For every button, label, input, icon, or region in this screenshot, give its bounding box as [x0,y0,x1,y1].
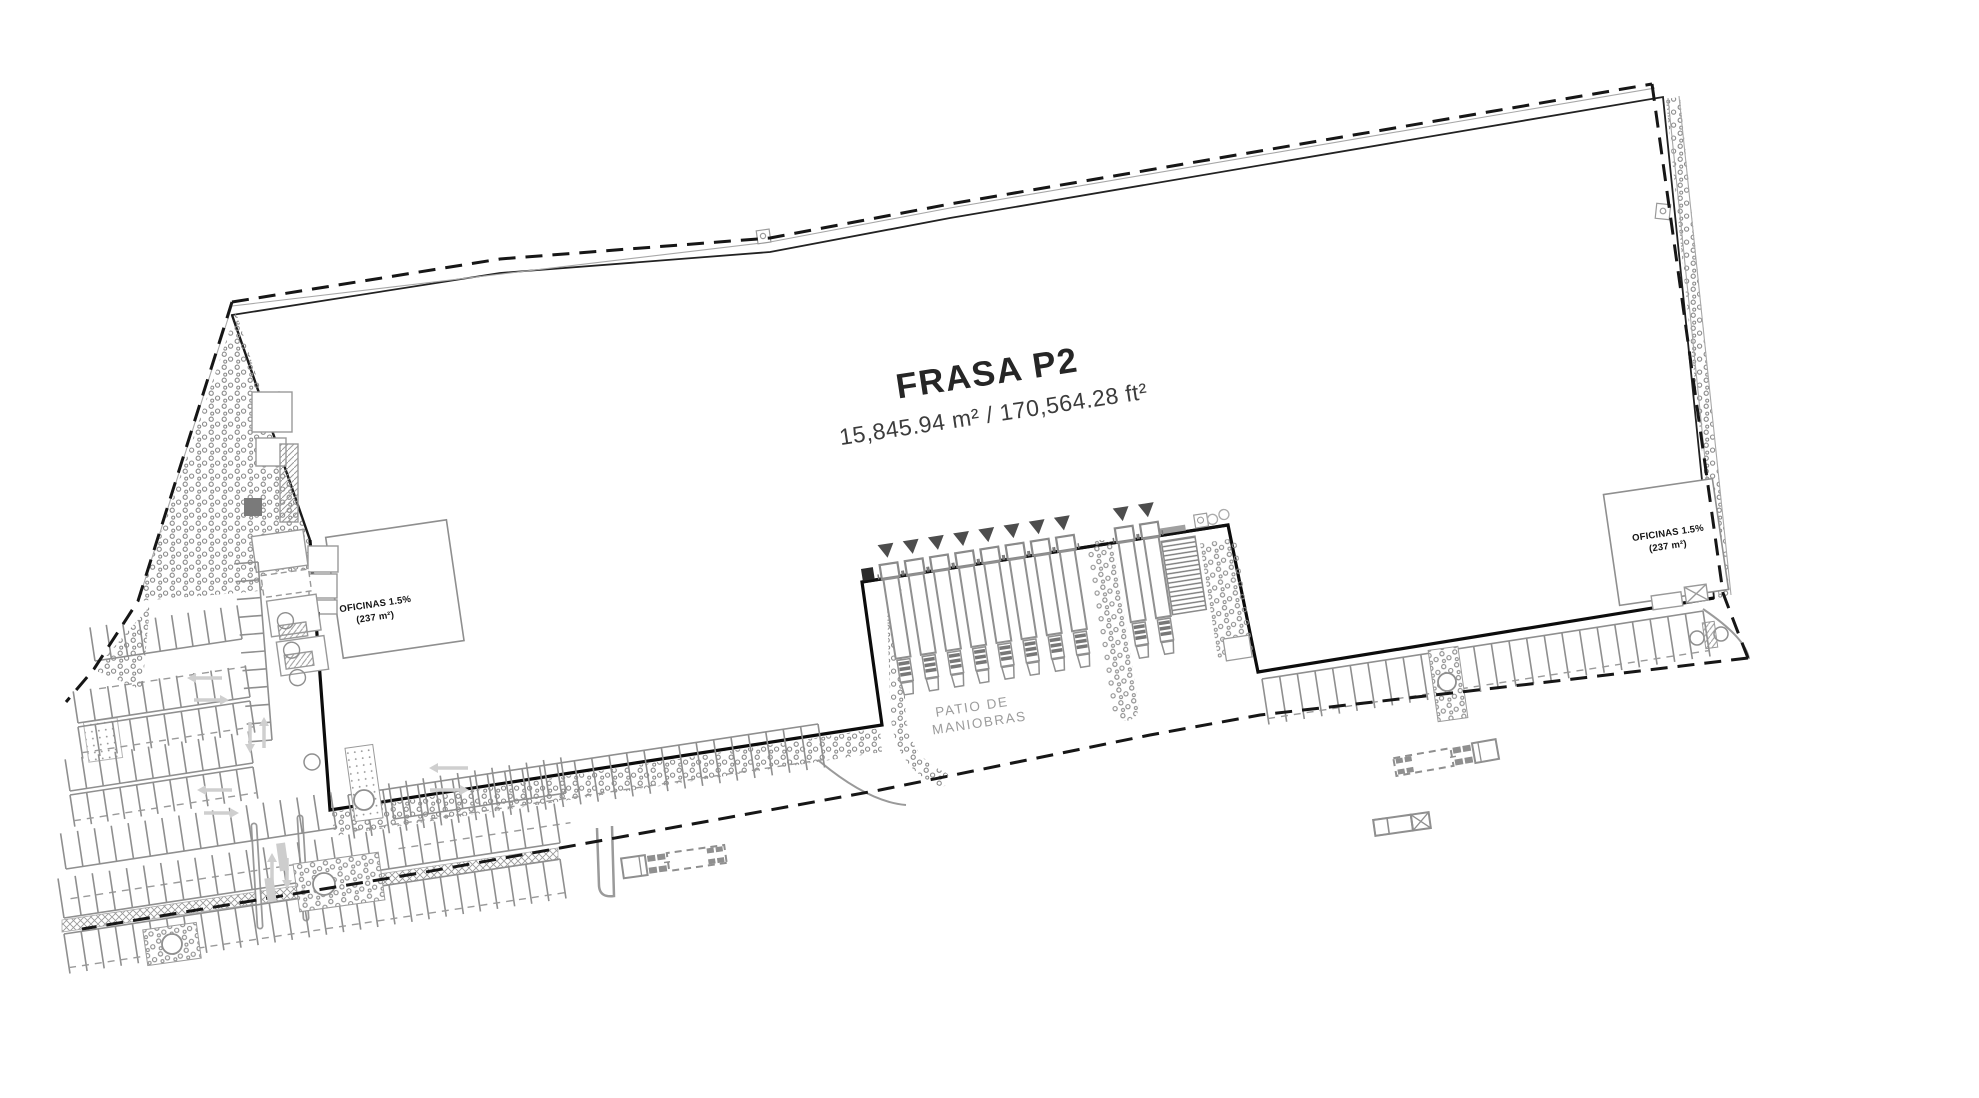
patio-entry-curb [597,826,614,896]
landscape-wedge-west-2 [94,606,150,690]
traffic-arrow [197,785,232,795]
accessible-pair-east [1690,621,1728,648]
accessible-circle [304,754,320,770]
landscape-dotted-patch [83,718,122,762]
office-left-box [326,520,464,658]
tree-symbol [354,790,374,810]
entry-stair-strip [280,444,298,522]
site-plan-drawing: OFICINAS 1.5% (237 m²) OFICINAS 1.5% (23… [0,0,1979,1098]
landscape-island [293,852,385,912]
tree-symbol [162,934,182,954]
truck-symbol [1393,739,1499,777]
truck-symbol [1373,812,1431,836]
tree-symbol [313,873,335,895]
tree-symbol [1438,673,1456,691]
truck-symbol [621,844,727,878]
site-plan-page: OFICINAS 1.5% (237 m²) OFICINAS 1.5% (23… [0,0,1979,1098]
office-left [326,520,464,658]
traffic-arrow [204,808,239,818]
